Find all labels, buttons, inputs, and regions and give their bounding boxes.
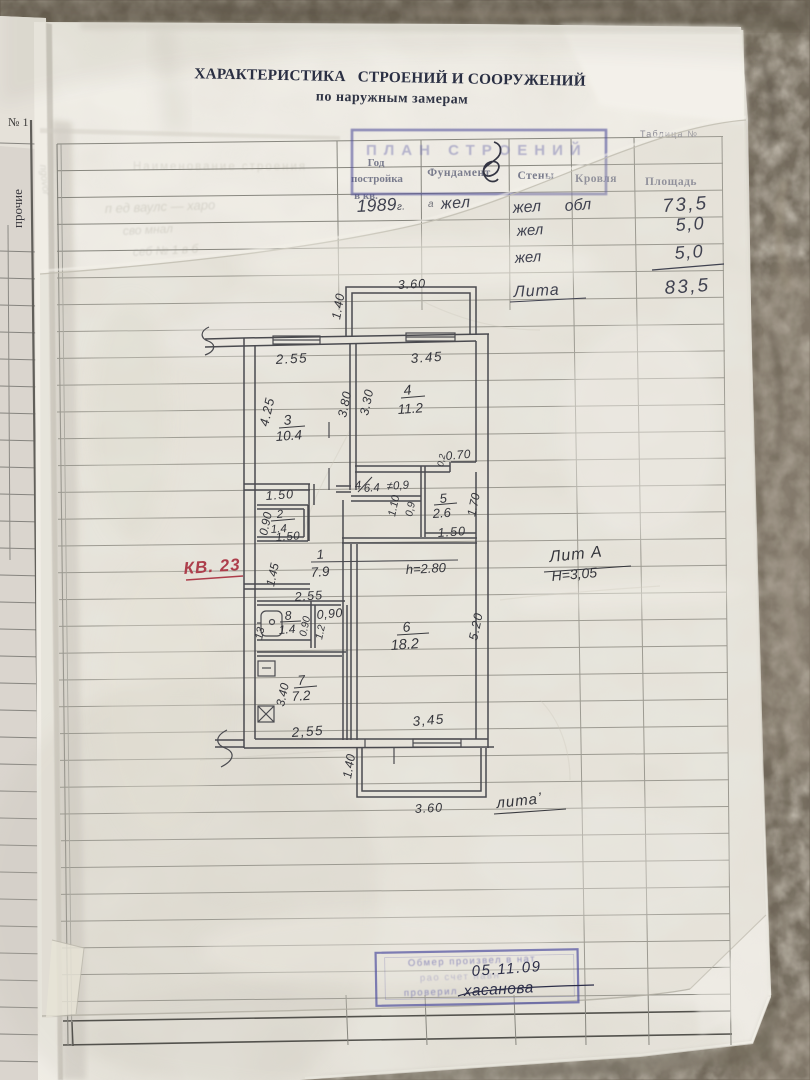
svg-text:проверил: проверил (404, 986, 458, 999)
